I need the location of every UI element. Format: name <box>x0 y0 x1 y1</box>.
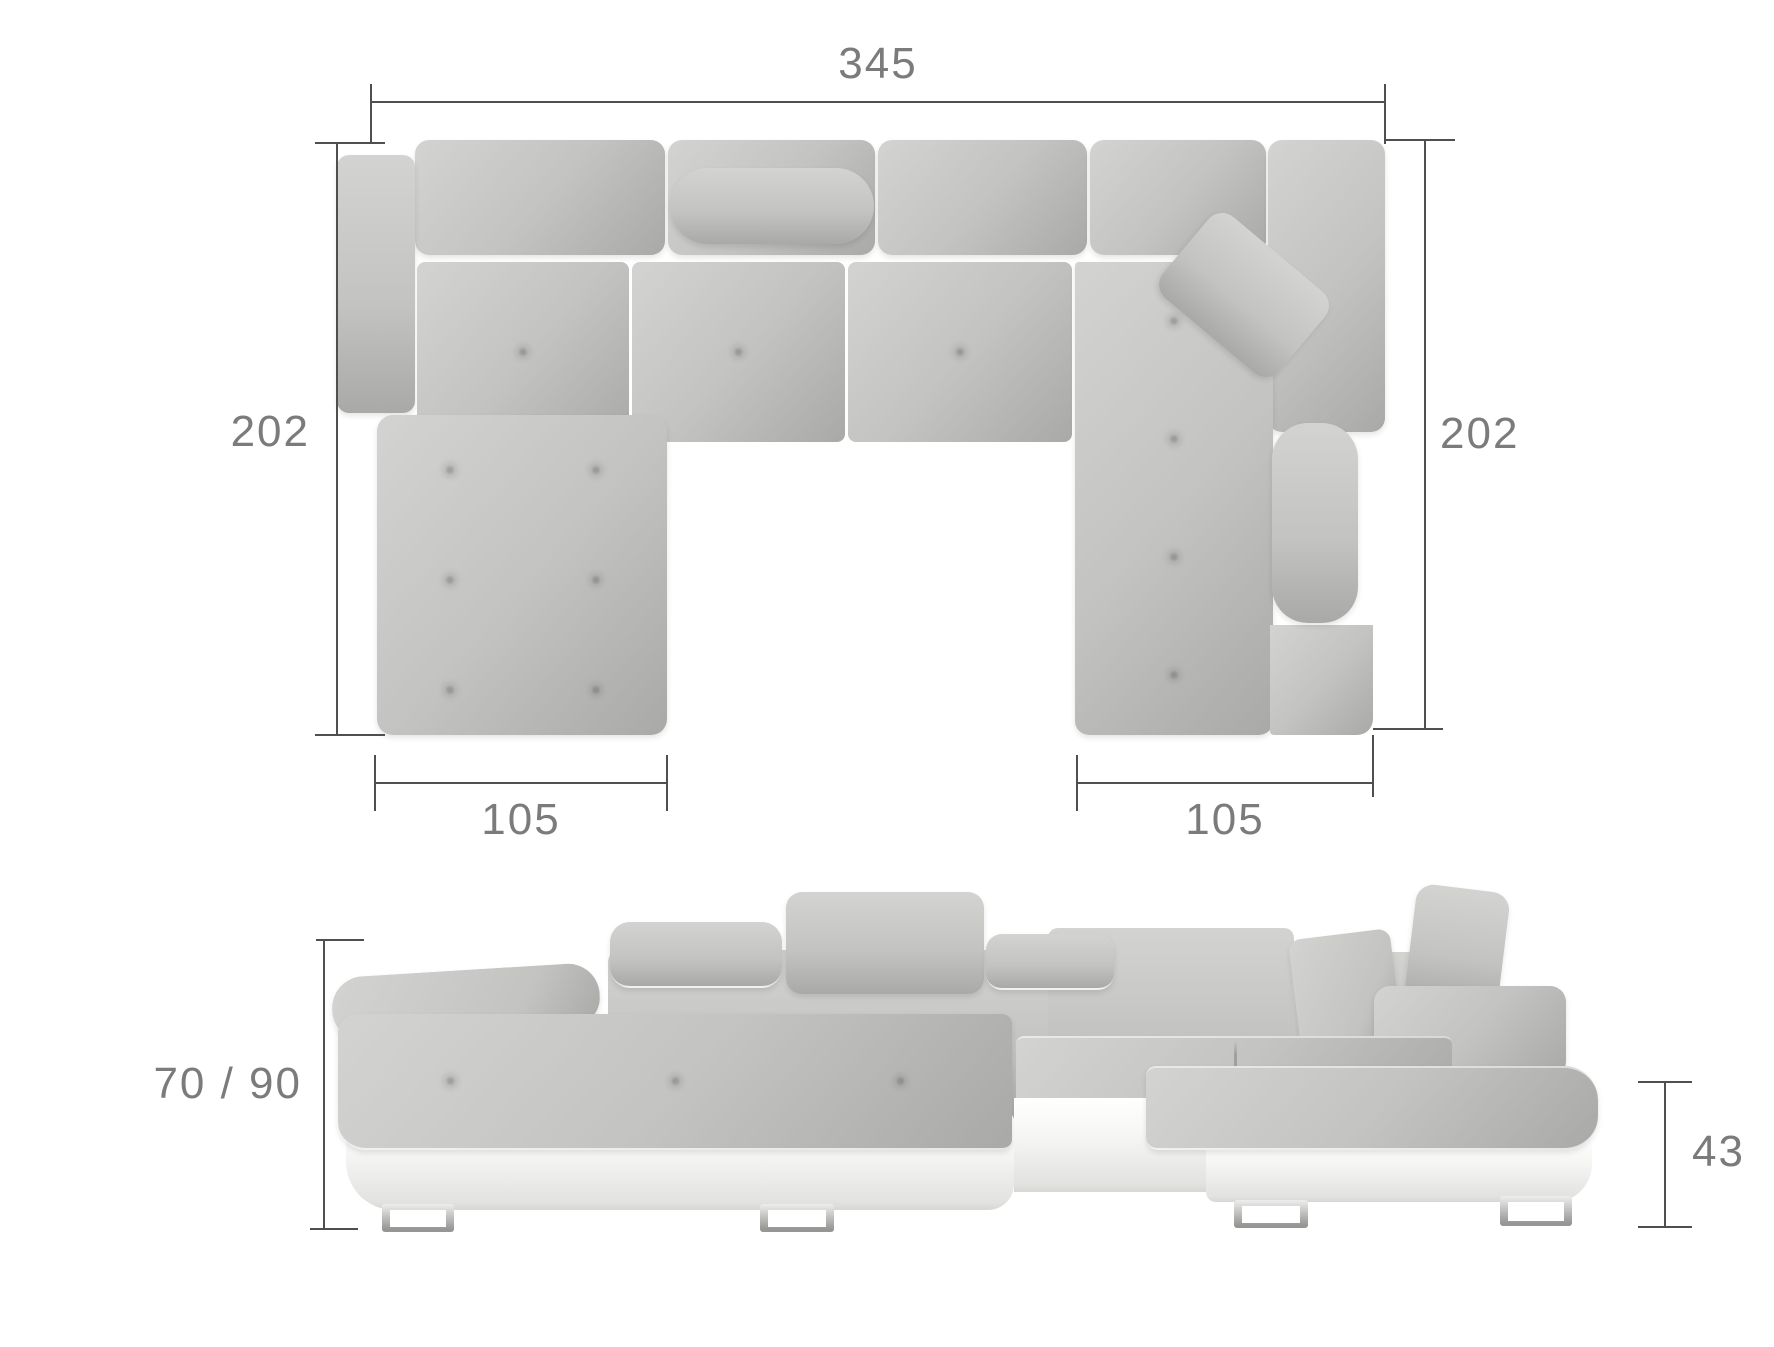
sofa-dimension-diagram: 345 202 202 105 105 <box>0 0 1774 1347</box>
top-view: 345 202 202 105 105 <box>0 0 1774 760</box>
front-leg-2-hole <box>768 1210 826 1227</box>
top-right-armrest-bolster <box>1272 423 1358 623</box>
front-view: 70 / 90 43 <box>0 760 1774 1347</box>
front-headrest-left <box>610 922 782 988</box>
top-seat-cushion-3 <box>848 262 1072 442</box>
front-right-chaise-seat <box>1146 1066 1598 1150</box>
dim-total-width-tick-left <box>370 84 372 144</box>
dim-height-tick-top <box>316 939 364 941</box>
front-leg-2 <box>760 1204 834 1232</box>
top-back-cushion-1 <box>415 140 665 255</box>
dim-left-depth-label: 202 <box>180 408 310 456</box>
dim-right-depth-tick-top <box>1385 139 1455 141</box>
front-leg-1-hole <box>390 1210 446 1227</box>
front-headrest-center-raised <box>786 892 984 994</box>
top-right-chaise-extension <box>1270 625 1373 735</box>
front-leg-4 <box>1500 1196 1572 1226</box>
dim-seat-height-label: 43 <box>1692 1128 1774 1176</box>
dim-total-width-label: 345 <box>728 40 1028 88</box>
front-leg-3-hole <box>1242 1206 1300 1223</box>
dim-total-width-line <box>371 101 1385 103</box>
top-seat-cushion-2 <box>632 262 845 442</box>
dim-height-line <box>323 940 325 1230</box>
front-leg-3 <box>1234 1200 1308 1228</box>
top-left-chaise <box>377 415 667 735</box>
front-left-chaise-seat <box>338 1014 1012 1150</box>
dim-height-label: 70 / 90 <box>110 1060 302 1108</box>
dim-seat-height-tick-bottom <box>1638 1226 1692 1228</box>
front-headrest-right <box>986 934 1114 990</box>
dim-right-depth-line <box>1424 140 1426 730</box>
dim-right-depth-label: 202 <box>1440 410 1600 458</box>
dim-height-tick-bottom <box>310 1228 358 1230</box>
front-leg-1 <box>382 1204 454 1232</box>
top-back-cushion-3 <box>878 140 1087 255</box>
dim-left-depth-line <box>336 143 338 735</box>
dim-seat-height-line <box>1664 1082 1666 1228</box>
dim-left-depth-tick-bottom <box>315 734 385 736</box>
top-left-armrest <box>337 155 415 413</box>
front-leg-4-hole <box>1508 1202 1564 1221</box>
dim-total-width-tick-right <box>1384 84 1386 144</box>
dim-seat-height-tick-top <box>1638 1081 1692 1083</box>
dim-left-depth-tick-top <box>315 142 385 144</box>
top-headrest-pillow <box>670 168 874 244</box>
dim-right-depth-tick-bottom <box>1373 728 1443 730</box>
